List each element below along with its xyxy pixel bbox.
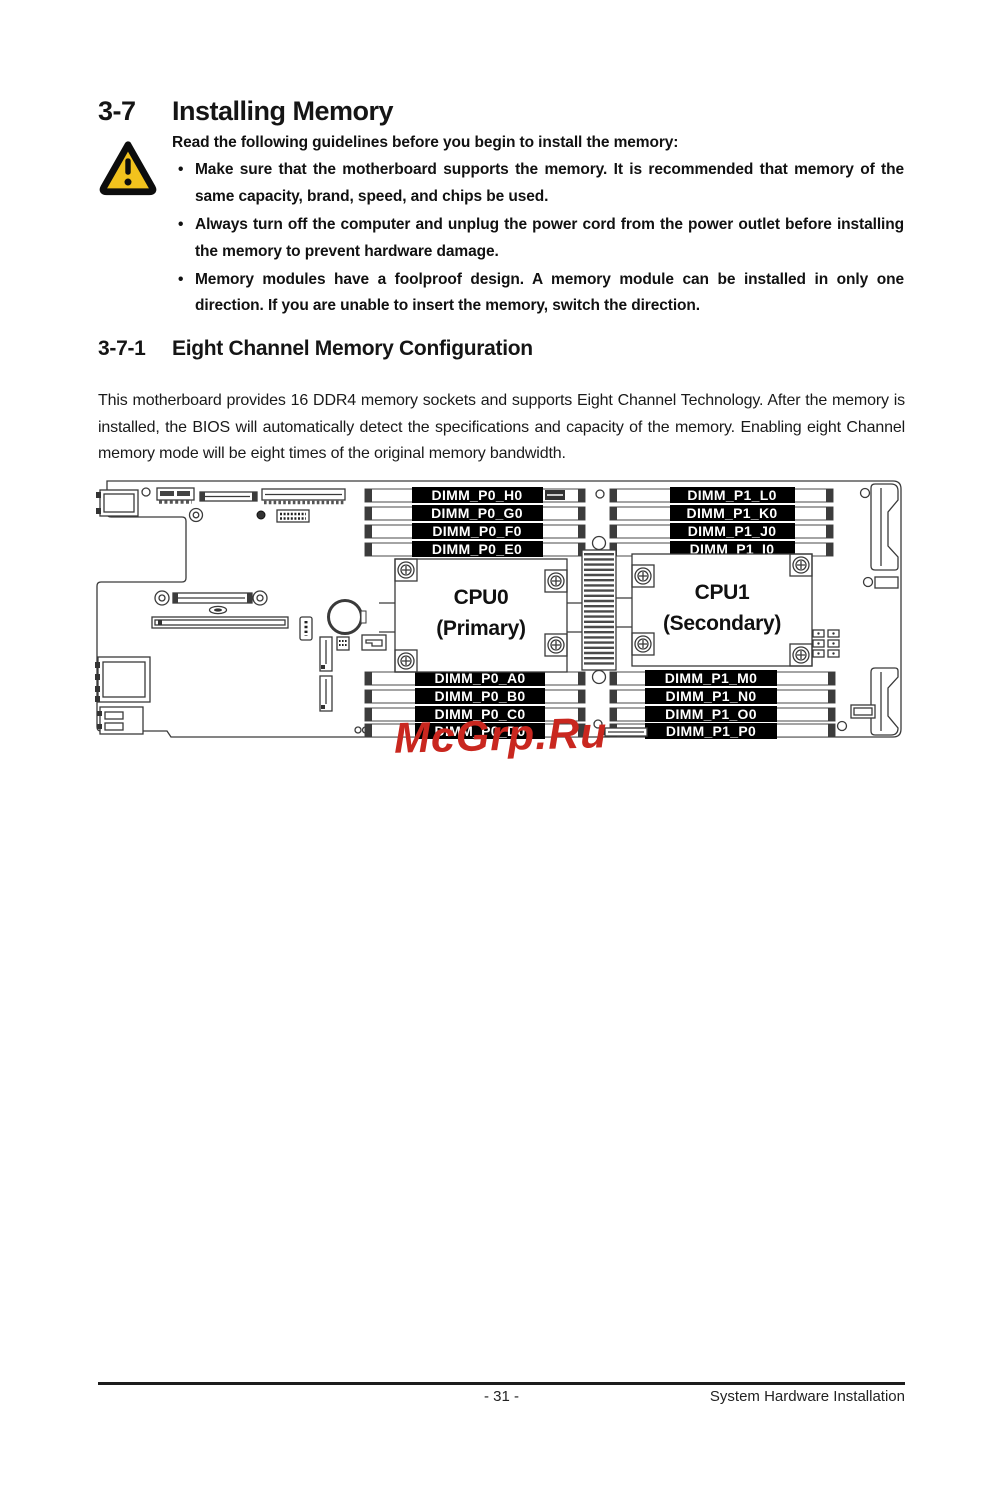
small-connector-right	[851, 705, 875, 718]
cpu0-label: CPU0	[454, 586, 509, 609]
dimm-label-p1-j0: DIMM_P1_J0	[688, 523, 777, 539]
dimm-label-p1-p0: DIMM_P1_P0	[666, 723, 756, 739]
guideline-bullet-2: Always turn off the computer and unplug …	[195, 212, 904, 266]
screw-hole	[190, 509, 203, 522]
manual-page: 3-7 Installing Memory Read the following…	[0, 0, 1000, 1486]
lan-port-lower	[97, 707, 143, 734]
section-heading: 3-7 Installing Memory	[98, 96, 393, 127]
dimm-label-p1-m0: DIMM_P1_M0	[665, 670, 757, 686]
cpu1-label: CPU1	[695, 581, 750, 604]
lan-port-upper	[95, 657, 150, 702]
guidelines-intro: Read the following guidelines before you…	[172, 131, 904, 154]
standoff	[257, 511, 265, 519]
board-hole	[142, 488, 150, 496]
section-number: 3-7	[98, 96, 172, 127]
guideline-bullet-1: Make sure that the motherboard supports …	[195, 157, 904, 211]
subsection-heading: 3-7-1 Eight Channel Memory Configuration	[98, 337, 533, 361]
dimm-label-p0-g0: DIMM_P0_G0	[431, 505, 523, 521]
board-hole	[838, 722, 847, 731]
slot-connector-a	[157, 488, 194, 502]
cpu1-socket: CPU1 (Secondary)	[616, 554, 812, 666]
bottom-center-connector	[601, 728, 647, 736]
heatsink	[582, 537, 616, 684]
dimm-label-p1-o0: DIMM_P1_O0	[665, 706, 757, 722]
page-title: Installing Memory	[172, 96, 393, 127]
dimm-label-p0-b0: DIMM_P0_B0	[435, 688, 526, 704]
dimm-label-p1-k0: DIMM_P1_K0	[687, 505, 778, 521]
dimm-label-p1-n0: DIMM_P1_N0	[666, 688, 757, 704]
subsection-number: 3-7-1	[98, 337, 172, 361]
dip-switch	[337, 637, 349, 650]
footer-divider	[98, 1382, 905, 1385]
m2-connector	[320, 637, 332, 671]
cpu0-socket: CPU0 (Primary)	[379, 559, 582, 672]
board-hole	[596, 490, 604, 498]
board-hole	[864, 578, 873, 587]
slot-connector-b	[200, 492, 257, 501]
screw-hole	[155, 591, 169, 605]
warning-icon	[97, 137, 159, 199]
bracket-latch	[875, 577, 898, 588]
long-slot-connector	[152, 617, 288, 628]
warning-triangle-icon	[97, 137, 159, 199]
cpu0-sublabel: (Primary)	[436, 617, 526, 640]
fan-header	[300, 617, 312, 640]
guideline-bullet-3: Memory modules have a foolproof design. …	[195, 267, 904, 321]
watermark: McGrp.Ru	[393, 709, 608, 764]
cpu1-sublabel: (Secondary)	[663, 612, 781, 635]
dimm-label-p0-e0: DIMM_P0_E0	[432, 541, 522, 557]
slot-connector-c	[262, 489, 345, 503]
board-hole	[861, 489, 870, 498]
footer-right-text: System Hardware Installation	[710, 1388, 905, 1405]
edge-connector	[96, 490, 138, 516]
slot-connector-mid	[173, 593, 252, 603]
dimm-label-p0-h0: DIMM_P0_H0	[432, 487, 523, 503]
body-paragraph: This motherboard provides 16 DDR4 memory…	[98, 388, 905, 468]
guidelines-list: Make sure that the motherboard supports …	[172, 157, 904, 320]
m2-connector	[320, 676, 332, 711]
guidelines-block: Read the following guidelines before you…	[172, 131, 904, 321]
screw-hole	[253, 591, 267, 605]
sata-connector	[362, 635, 386, 650]
pin-header	[277, 510, 309, 522]
dimm-label-p0-f0: DIMM_P0_F0	[432, 523, 521, 539]
subsection-title: Eight Channel Memory Configuration	[172, 337, 533, 361]
dimm-label-p1-l0: DIMM_P1_L0	[687, 487, 776, 503]
oval-pad	[210, 606, 227, 613]
